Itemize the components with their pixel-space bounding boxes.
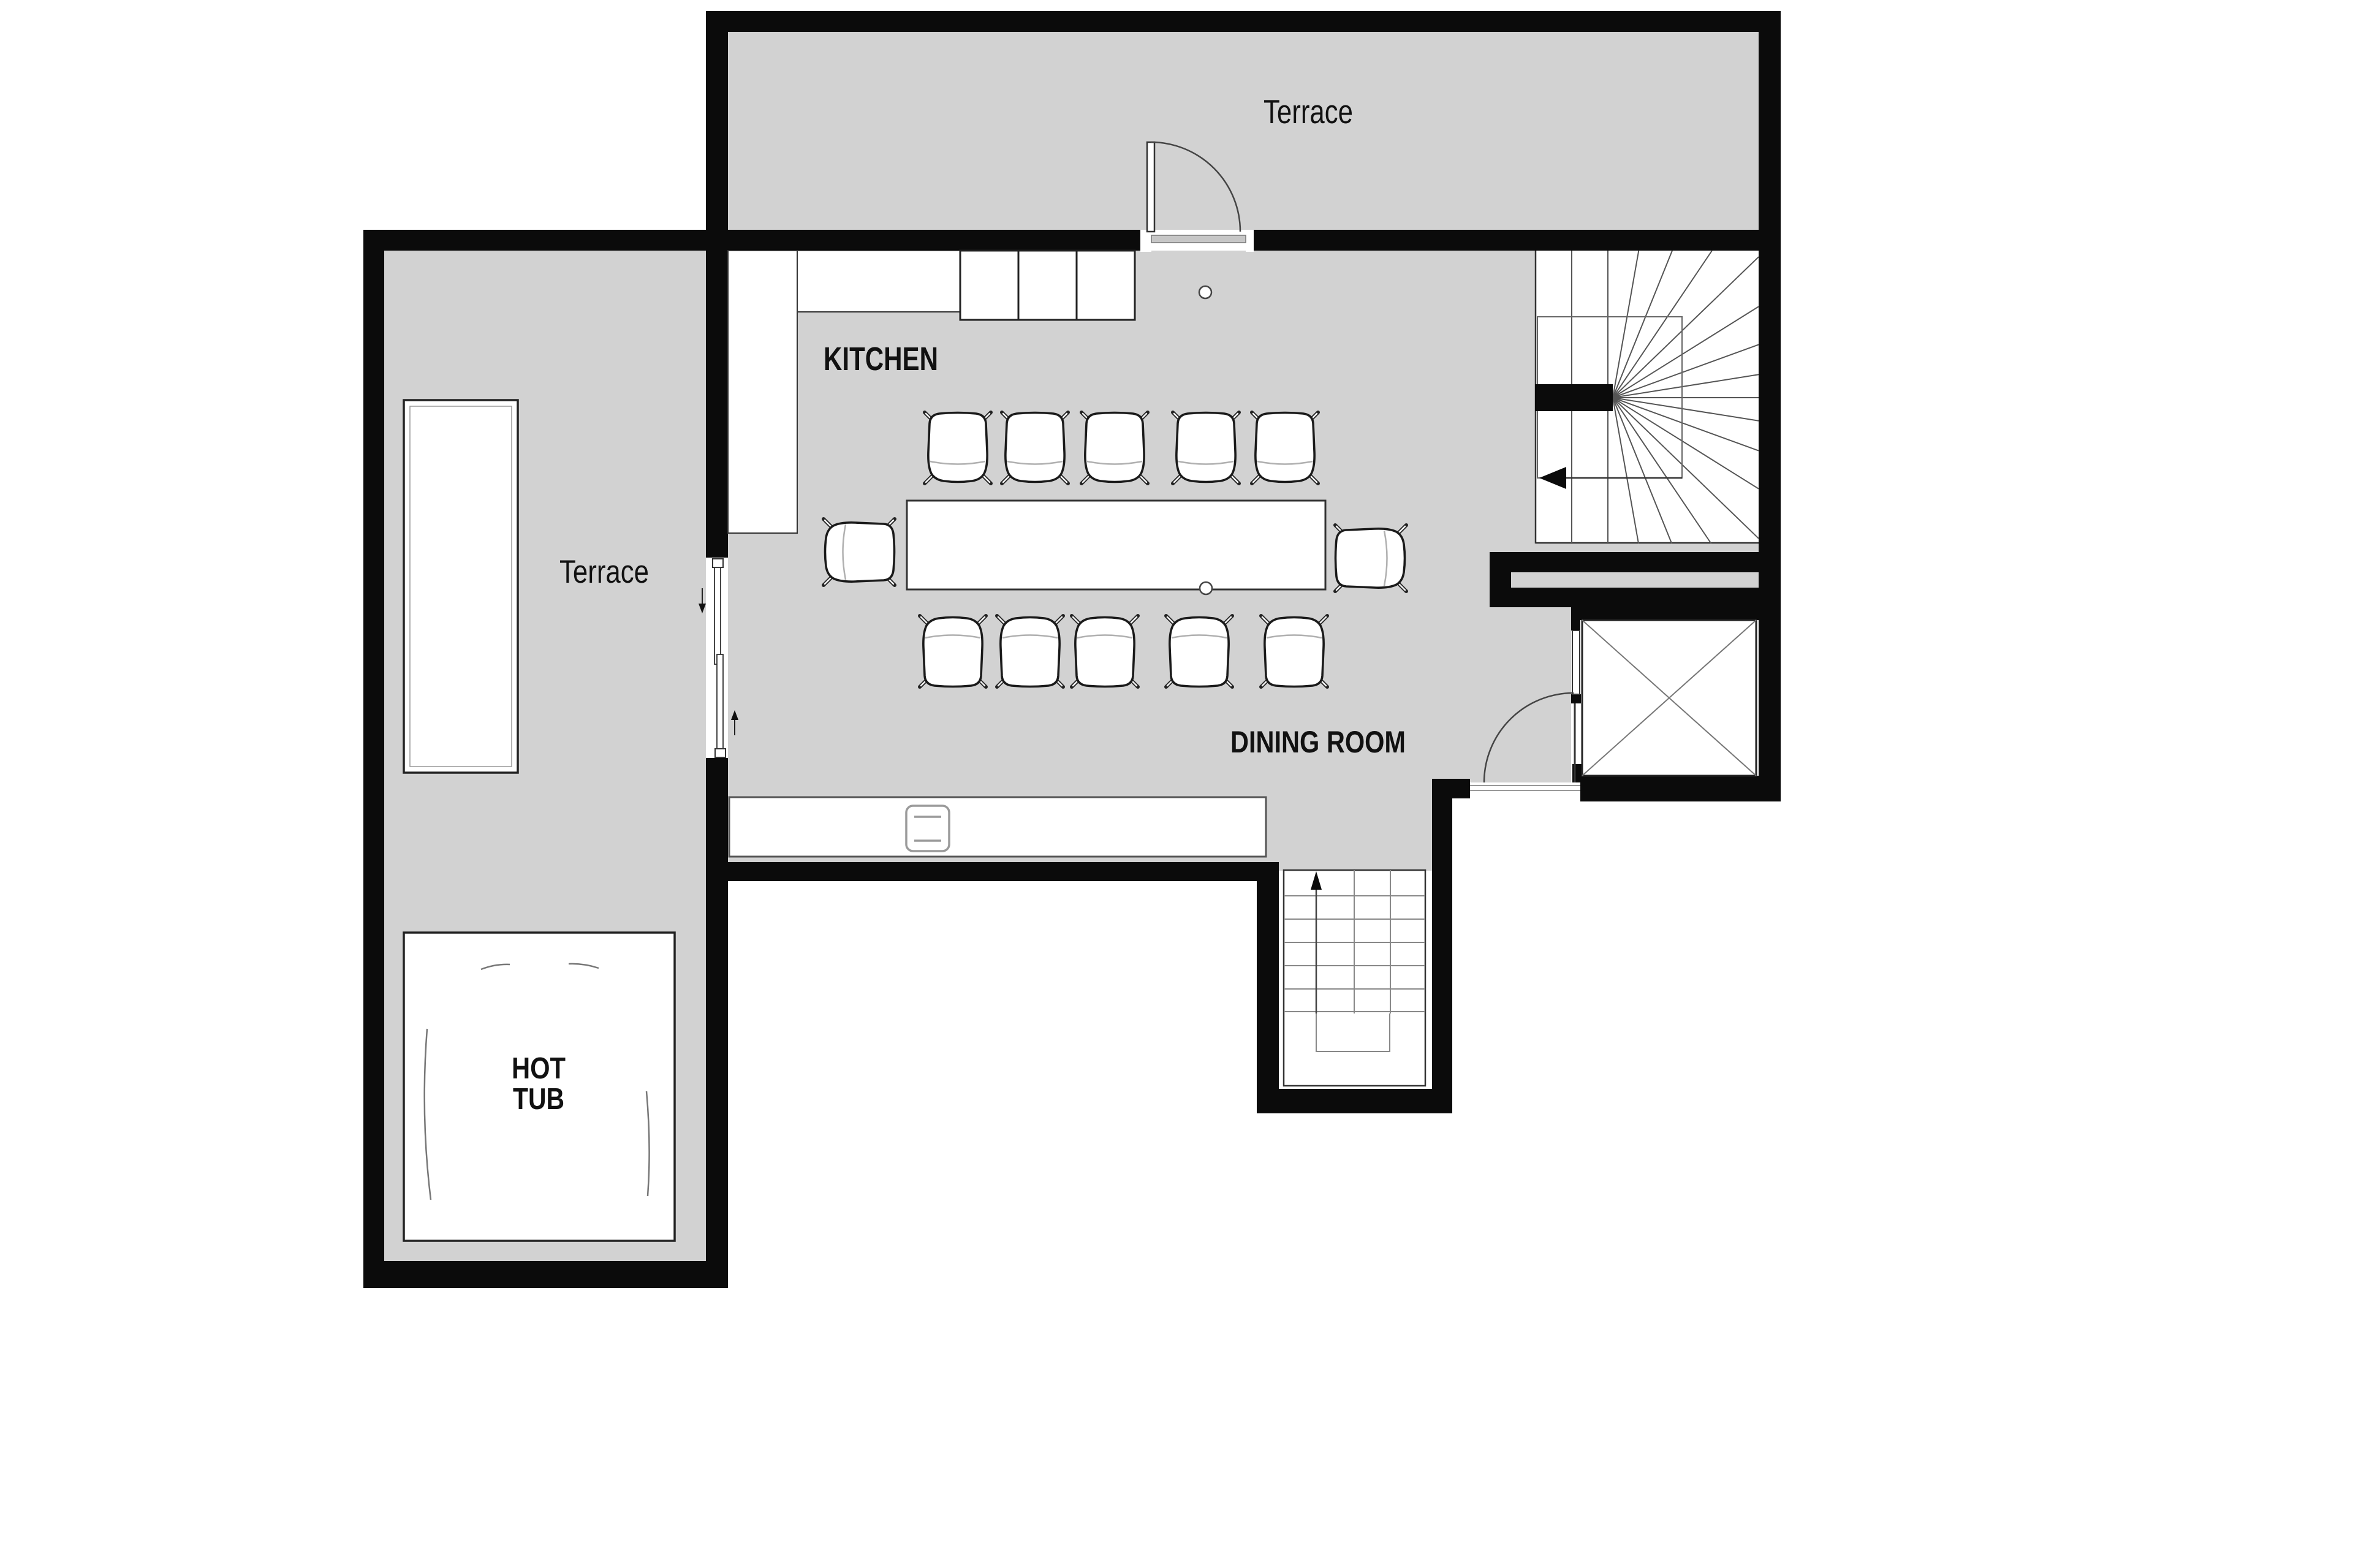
svg-text:HOT: HOT [512,1052,566,1085]
svg-text:TUB: TUB [513,1083,564,1116]
svg-text:Terrace: Terrace [559,554,649,590]
svg-text:DINING ROOM: DINING ROOM [1230,725,1406,759]
svg-text:Terrace: Terrace [1264,93,1353,131]
svg-text:KITCHEN: KITCHEN [824,341,938,377]
